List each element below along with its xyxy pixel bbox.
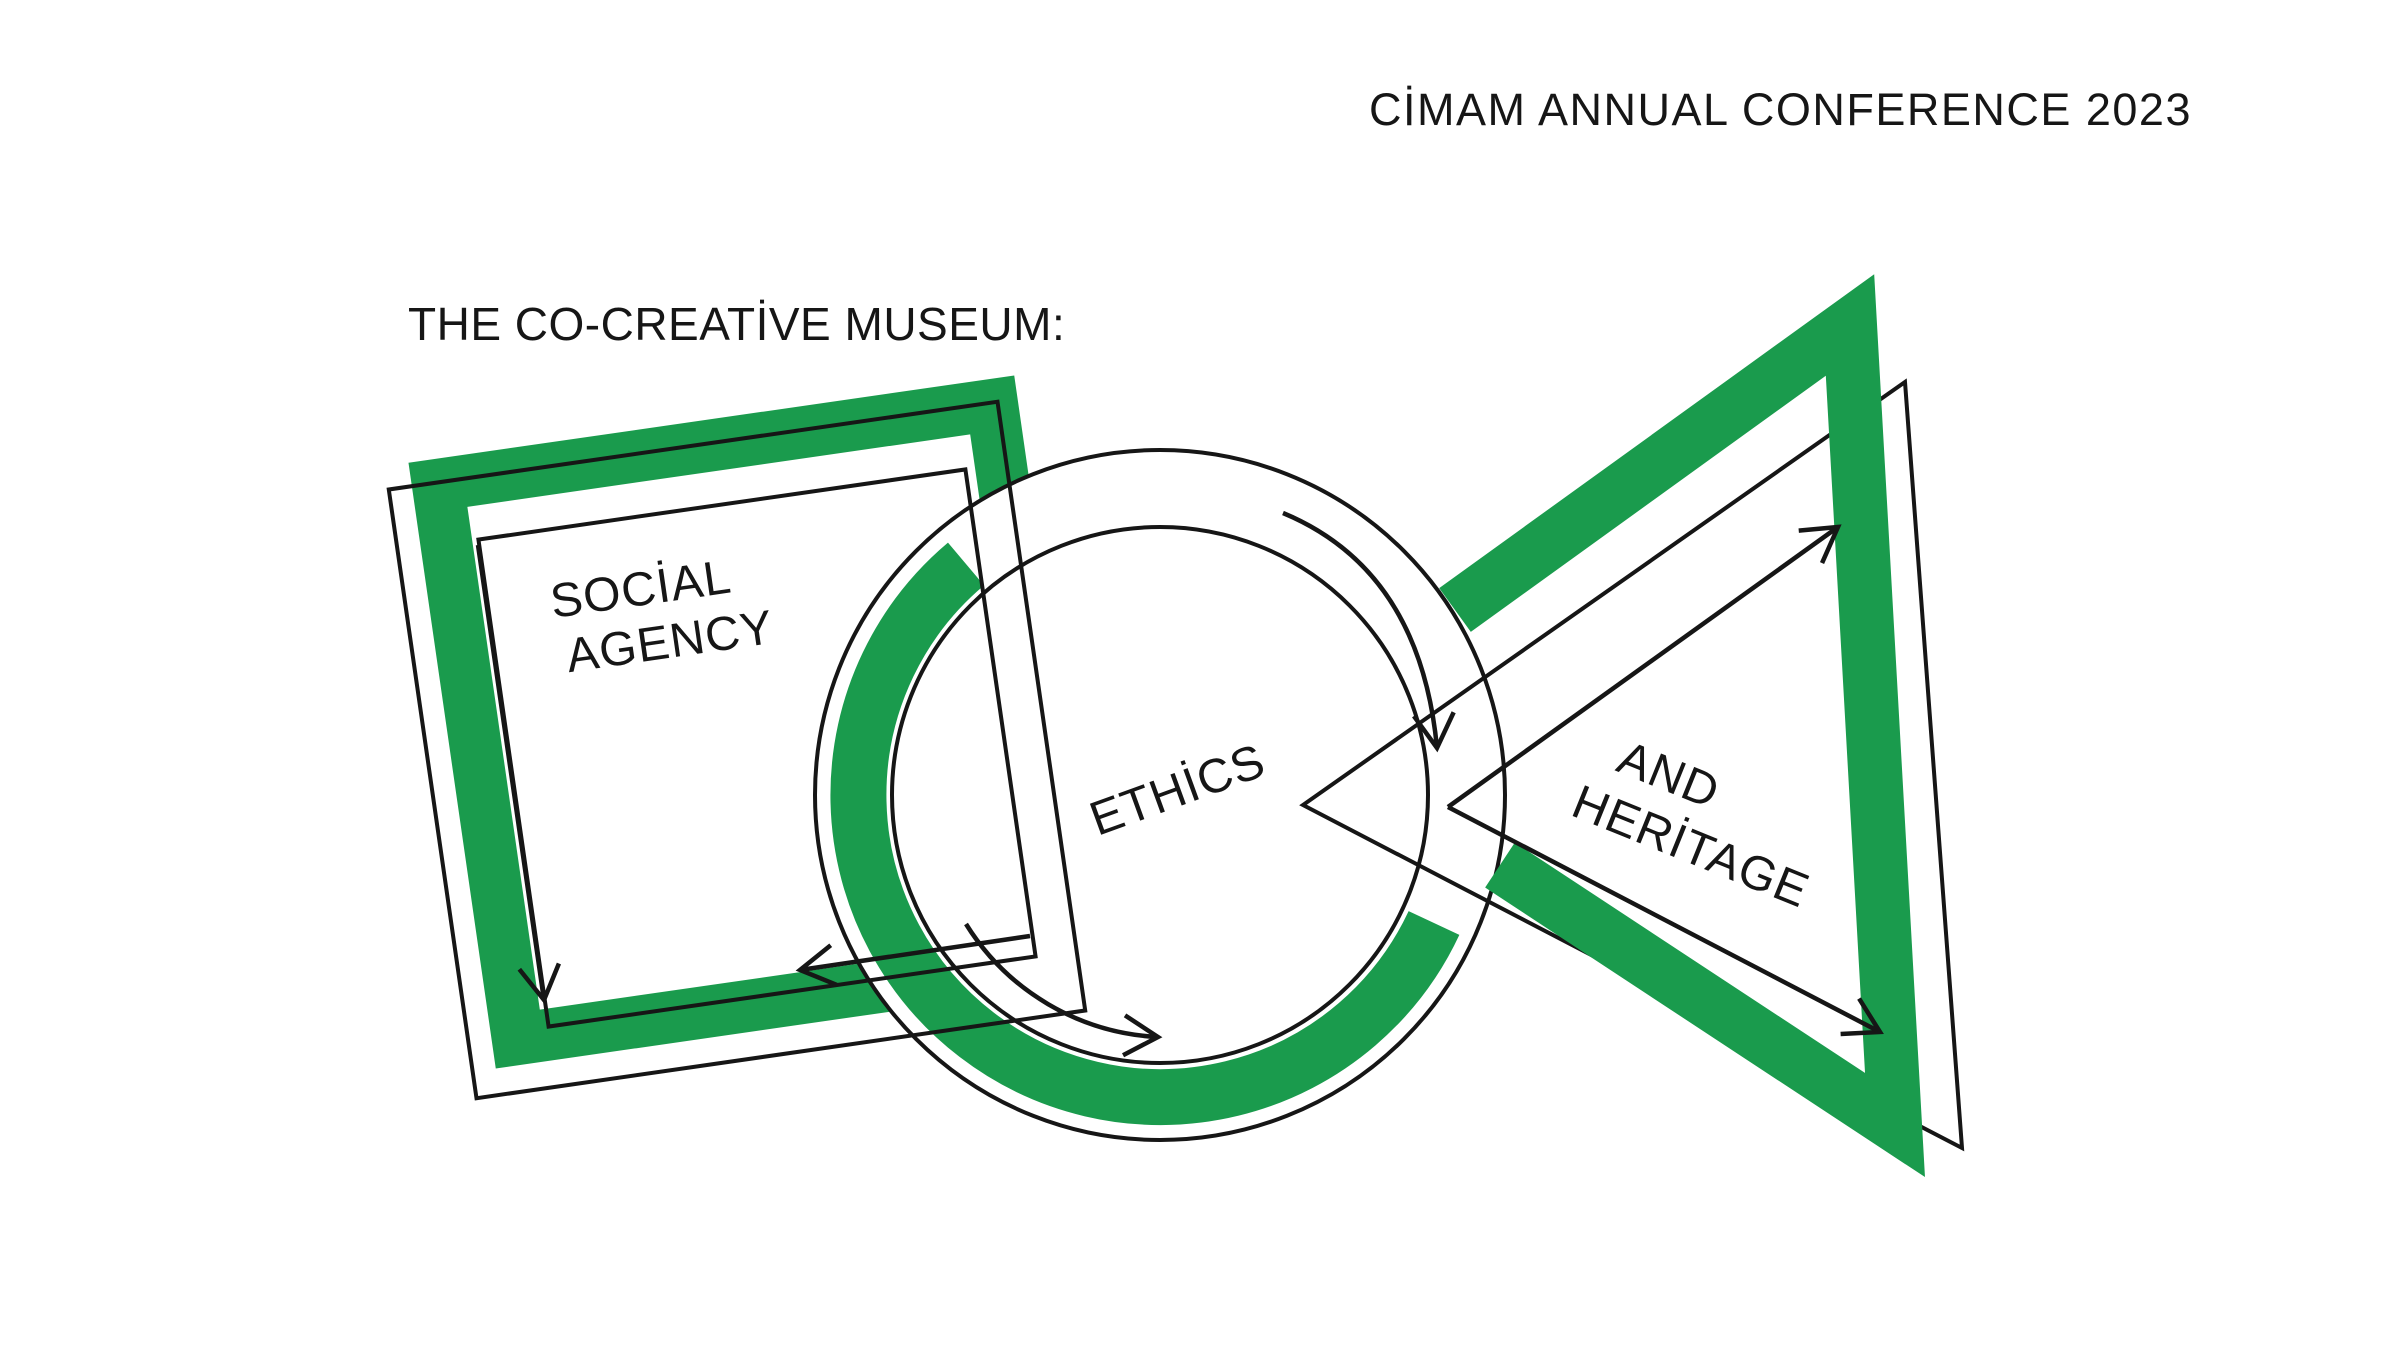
conference-title: CİMAM ANNUAL CONFERENCE 2023: [1369, 84, 2192, 135]
conference-slide: CİMAM ANNUAL CONFERENCE 2023 THE CO-CREA…: [0, 0, 2400, 1350]
page-title: THE CO-CREATİVE MUSEUM:: [408, 298, 1065, 350]
co-creative-museum-diagram: CİMAM ANNUAL CONFERENCE 2023 THE CO-CREA…: [0, 0, 2400, 1350]
